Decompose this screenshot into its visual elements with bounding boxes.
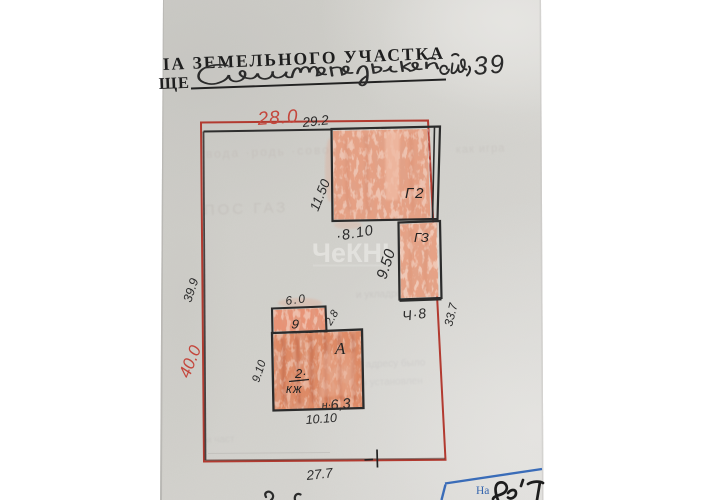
svg-text:кж: кж — [286, 382, 303, 396]
svg-text:Г2: Г2 — [405, 185, 426, 202]
svg-text:6.0: 6.0 — [284, 291, 307, 308]
svg-text:29.2: 29.2 — [301, 112, 330, 130]
svg-text:он установлен: он установлен — [356, 376, 423, 389]
svg-text:27.7: 27.7 — [305, 465, 334, 483]
svg-text:А: А — [334, 339, 346, 358]
svg-text:ЩЕ: ЩЕ — [158, 73, 190, 93]
svg-text:28.0: 28.0 — [256, 106, 299, 130]
svg-text:ПОС ГАЗ: ПОС ГАЗ — [204, 199, 289, 219]
svg-text:На: На — [476, 485, 489, 497]
svg-text:и част: и част — [206, 434, 236, 446]
svg-text:39: 39 — [472, 48, 507, 81]
svg-text:2·: 2· — [294, 366, 307, 381]
svg-text:ГЗ: ГЗ — [414, 230, 429, 245]
svg-text:как игра: как игра — [456, 142, 506, 156]
svg-text:и укладро: и укладро — [356, 288, 403, 301]
svg-text:Ч·8: Ч·8 — [401, 305, 428, 324]
svg-text:10.10: 10.10 — [305, 411, 337, 427]
